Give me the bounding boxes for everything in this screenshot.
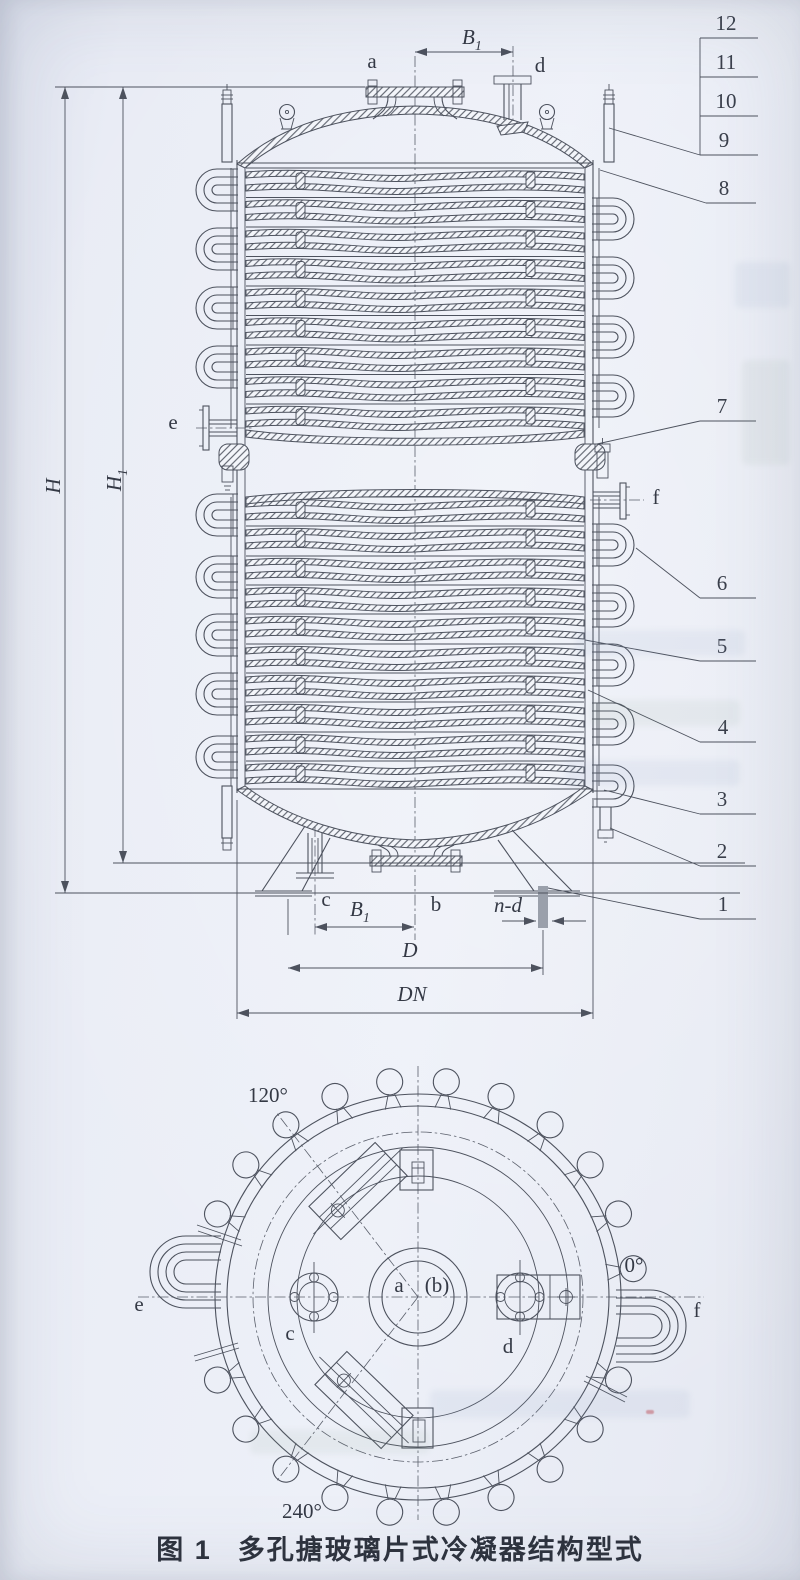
label-nozzle-a: a [367,49,377,73]
plan-label-f: f [694,1298,701,1322]
support-leg-left [255,826,330,935]
callout-1: 1 [718,892,729,916]
plan-loop-f [616,1290,686,1362]
label-angle-0: 0° [625,1253,644,1277]
scanned-page: H H1 B1 B1 n-d D DN a d e f b c [0,0,800,1580]
bleed-through-spot [590,700,740,726]
callout-8: 8 [719,176,730,200]
nozzle-c [296,826,334,936]
dim-label-B1-bottom: B1 [350,897,370,926]
label-nozzle-c: c [321,887,330,911]
figure-caption-number: 图 1 [156,1535,212,1565]
head-clamp-left [221,84,233,162]
dim-label-D: D [401,938,417,962]
bleed-through-spot [735,262,790,308]
bleed-through-spot [742,360,790,465]
bleed-through-spot [575,630,745,656]
plan-label-c: c [285,1321,294,1345]
label-nozzle-e: e [168,410,177,434]
callout-12: 12 [716,11,737,35]
callout-6: 6 [717,571,728,595]
elevation-view: H H1 B1 B1 n-d D DN a d e f b c [41,11,758,1019]
plan-bracket-top [400,1150,433,1190]
nozzle-b [370,845,462,872]
callout-3: 3 [717,787,728,811]
label-nozzle-b: b [431,892,442,916]
plan-240-axis [276,1297,418,1482]
plan-nozzle-d [496,1260,580,1335]
label-nozzle-d: d [535,53,546,77]
plan-label-e: e [134,1292,143,1316]
bleed-through-spot [250,1430,430,1454]
plan-label-d: d [503,1334,514,1358]
dim-label-DN: DN [396,982,427,1006]
figure-caption: 图 1多孔搪玻璃片式冷凝器结构型式 [0,1528,800,1567]
nozzle-e [196,406,252,450]
head-clamp-right [603,84,615,162]
dim-label-B1-top: B1 [462,25,482,54]
dim-label-n-d: n-d [494,893,522,917]
callout-9: 9 [719,128,730,152]
label-angle-240: 240° [282,1499,322,1523]
callout-11: 11 [716,50,736,74]
mid-flange-joint [219,430,610,504]
plan-120-axis [276,1112,418,1297]
callout-7: 7 [717,394,728,418]
bottom-clamp-left [221,786,233,850]
callout-2: 2 [717,839,728,863]
lifting-lug-left [280,105,295,130]
dim-label-H1: H1 [102,469,131,492]
tube-stubs [194,1225,627,1402]
dim-label-H: H [41,477,65,495]
plan-label-center-a: a [394,1273,404,1297]
plan-label-center-b: (b) [425,1273,450,1297]
plan-view: 120° 0° 240° e f c d a (b) [134,1066,704,1527]
figure-caption-title: 多孔搪玻璃片式冷凝器结构型式 [238,1535,644,1565]
red-speck [646,1410,654,1414]
nozzle-f [590,483,644,519]
label-nozzle-f: f [653,485,660,509]
drain-fitting [598,807,613,842]
callout-10: 10 [716,89,737,113]
label-angle-120: 120° [248,1083,288,1107]
anchor-bolt [538,886,548,928]
lifting-lug-right [540,105,555,130]
bleed-through-spot [565,760,740,786]
figure-drawing: H H1 B1 B1 n-d D DN a d e f b c [0,0,800,1580]
u-bends-left [196,169,238,778]
